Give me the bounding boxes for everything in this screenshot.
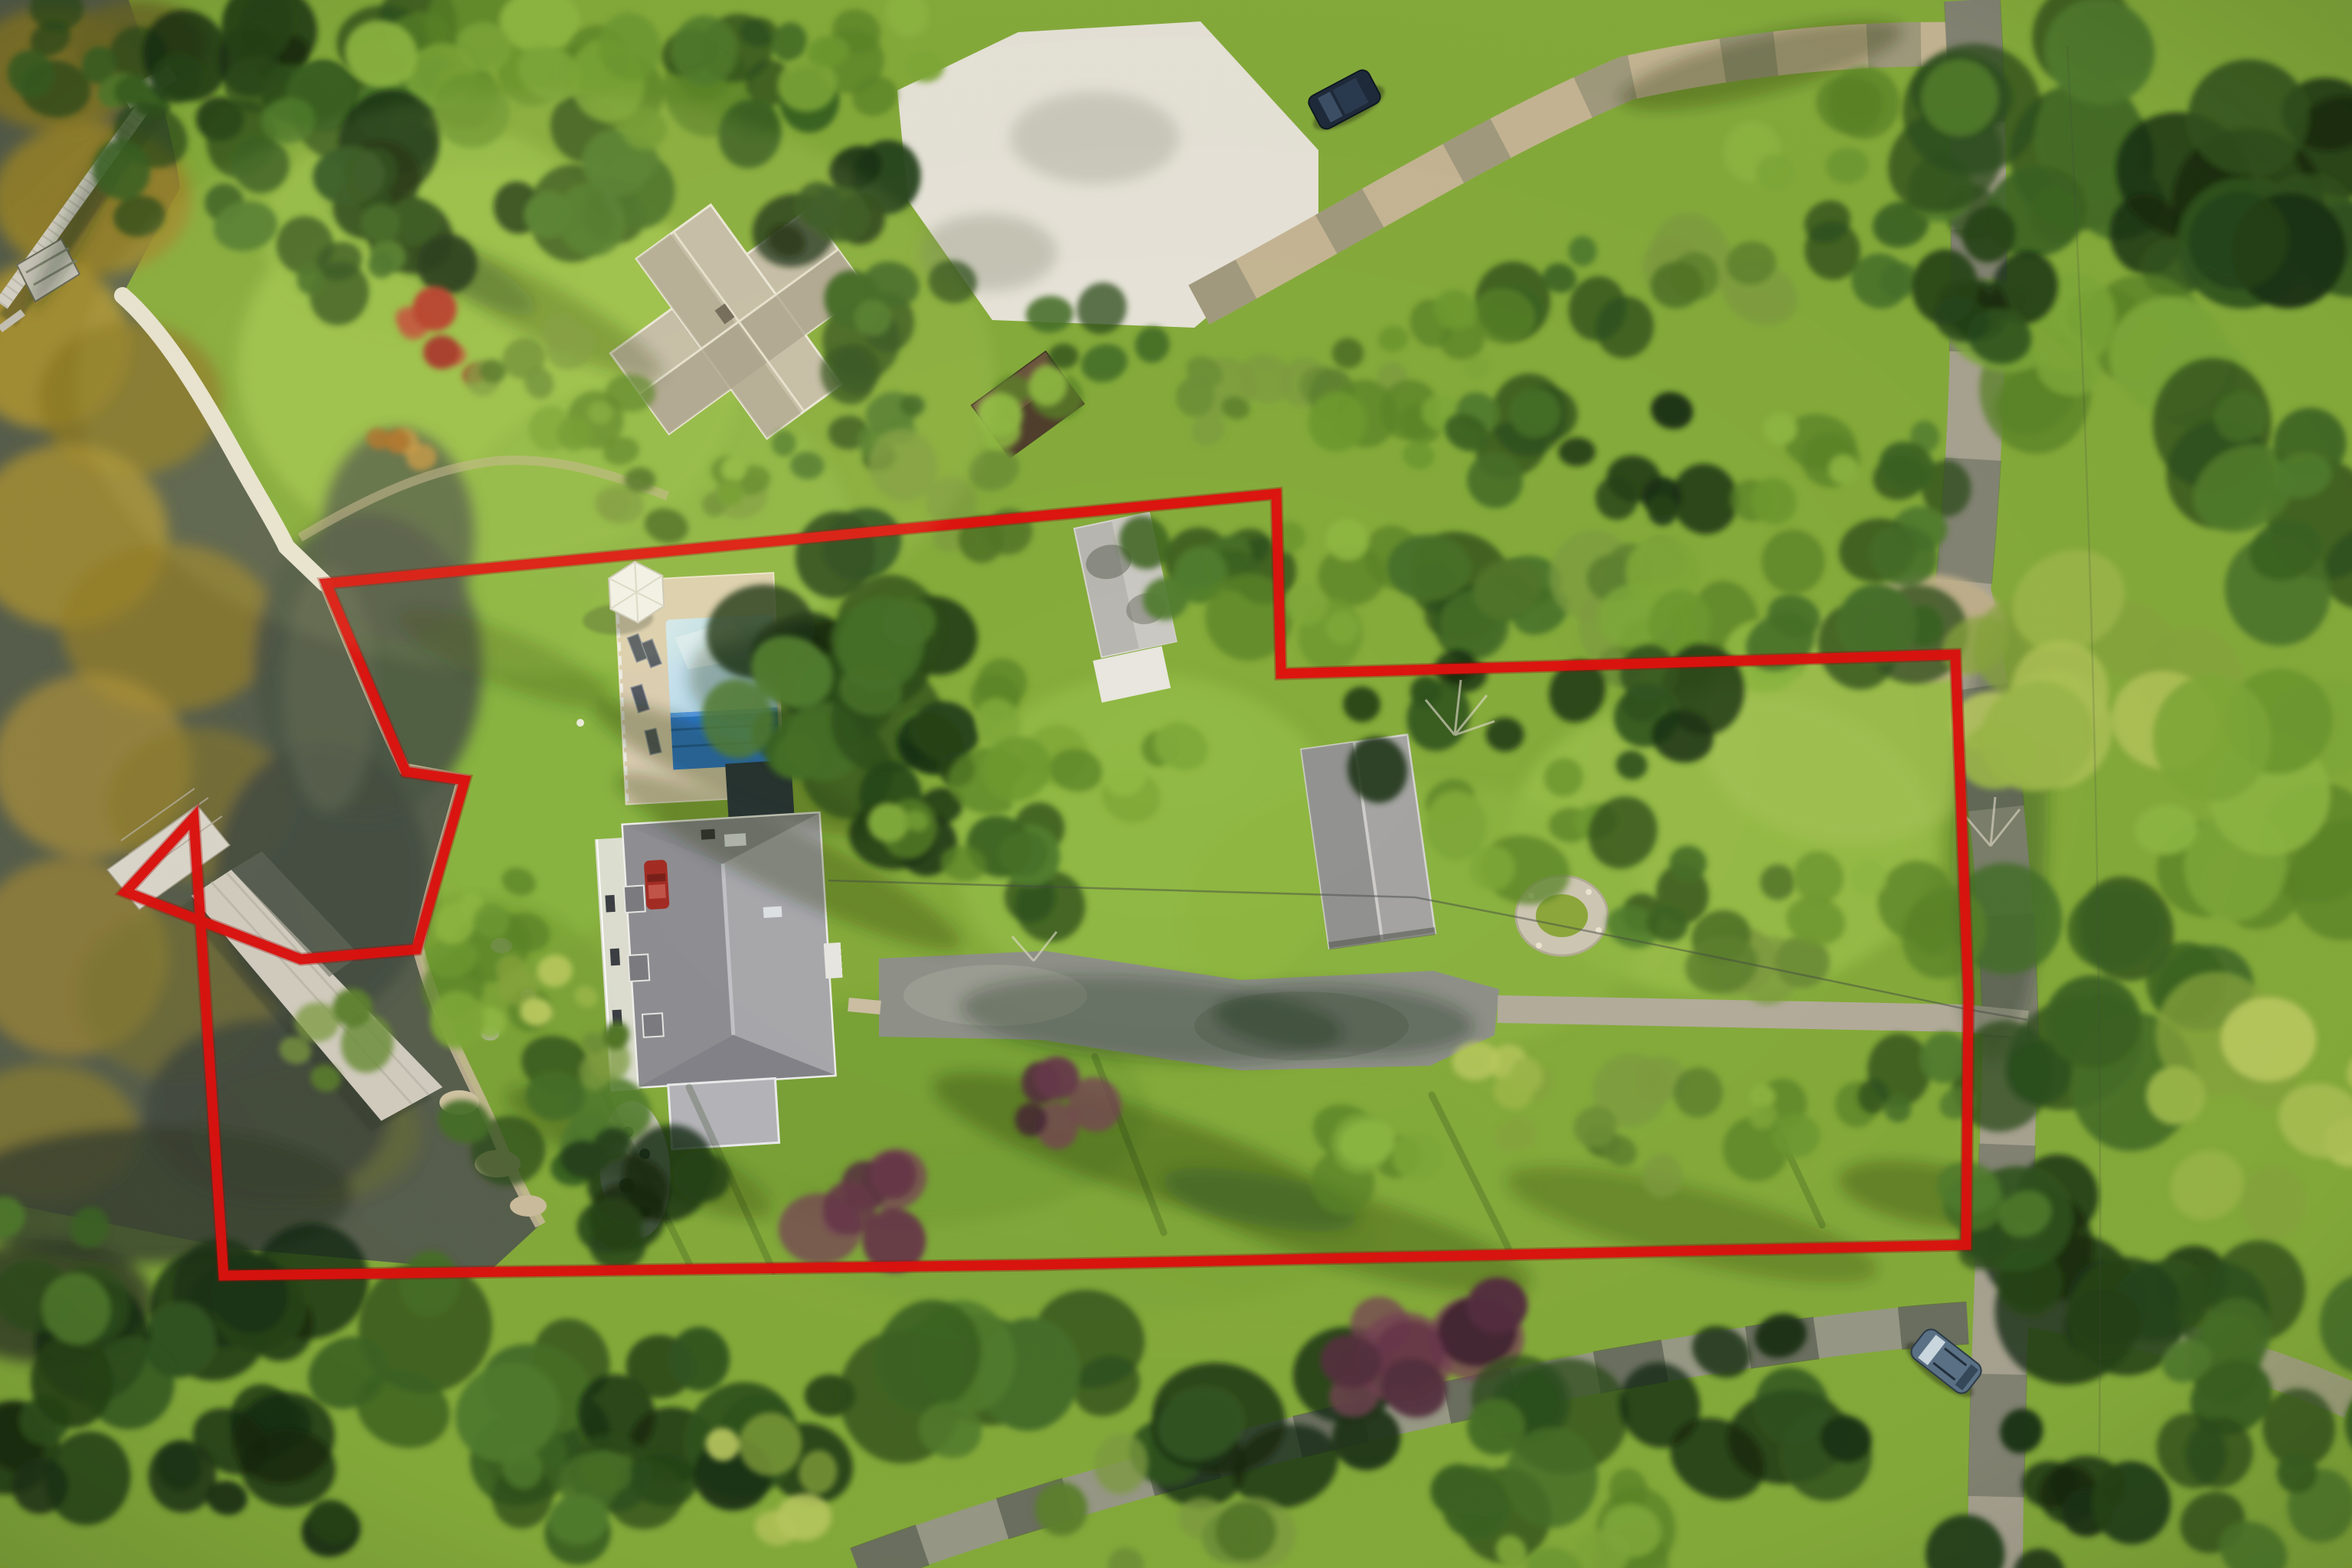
vignette: [0, 0, 2352, 1568]
aerial-photo: [0, 0, 2352, 1568]
aerial-photo-page: [0, 0, 2352, 1568]
